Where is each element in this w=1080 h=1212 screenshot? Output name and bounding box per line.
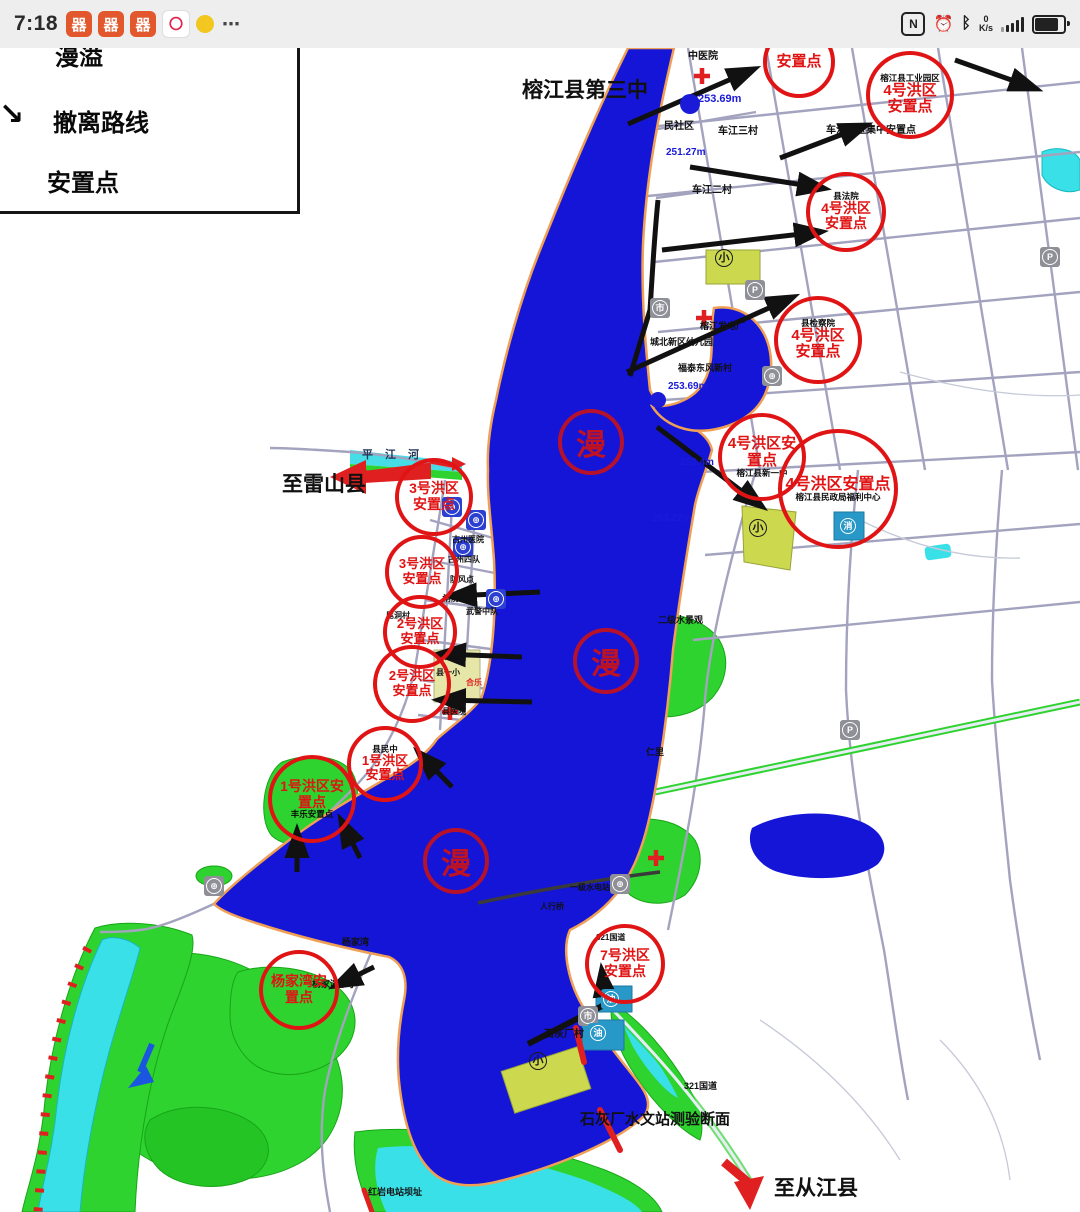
notification-app-icon <box>196 15 214 33</box>
battery-icon <box>1032 15 1066 34</box>
network-speed-unit: K/s <box>979 24 993 33</box>
signal-strength-icon <box>1001 17 1024 32</box>
notification-app-icon: 器 <box>66 11 92 37</box>
status-bar: 7:18 器器器〇 ⋯ N ⏰ ᛒ 0 K/s <box>0 0 1080 48</box>
nfc-icon: N <box>901 12 925 36</box>
network-speed: 0 K/s <box>979 15 993 32</box>
bluetooth-icon: ᛒ <box>961 15 971 33</box>
notification-app-icon: 器 <box>98 11 124 37</box>
alarm-icon: ⏰ <box>933 14 953 34</box>
legend-item-settlement: 安置点 <box>47 163 119 198</box>
lake <box>750 813 884 878</box>
notification-app-icon: 器 <box>130 11 156 37</box>
notification-app-icons: 器器器〇 <box>66 10 214 38</box>
clock-time: 7:18 <box>14 12 58 36</box>
notification-app-icon: 〇 <box>162 10 190 38</box>
evacuation-route-arrow-icon: ↘ <box>0 97 24 132</box>
more-notifications-icon: ⋯ <box>222 14 240 35</box>
legend-item-route: 撤离路线 <box>53 103 149 138</box>
map-legend: 漫溢 ↘ 撤离路线 安置点 <box>0 34 300 214</box>
